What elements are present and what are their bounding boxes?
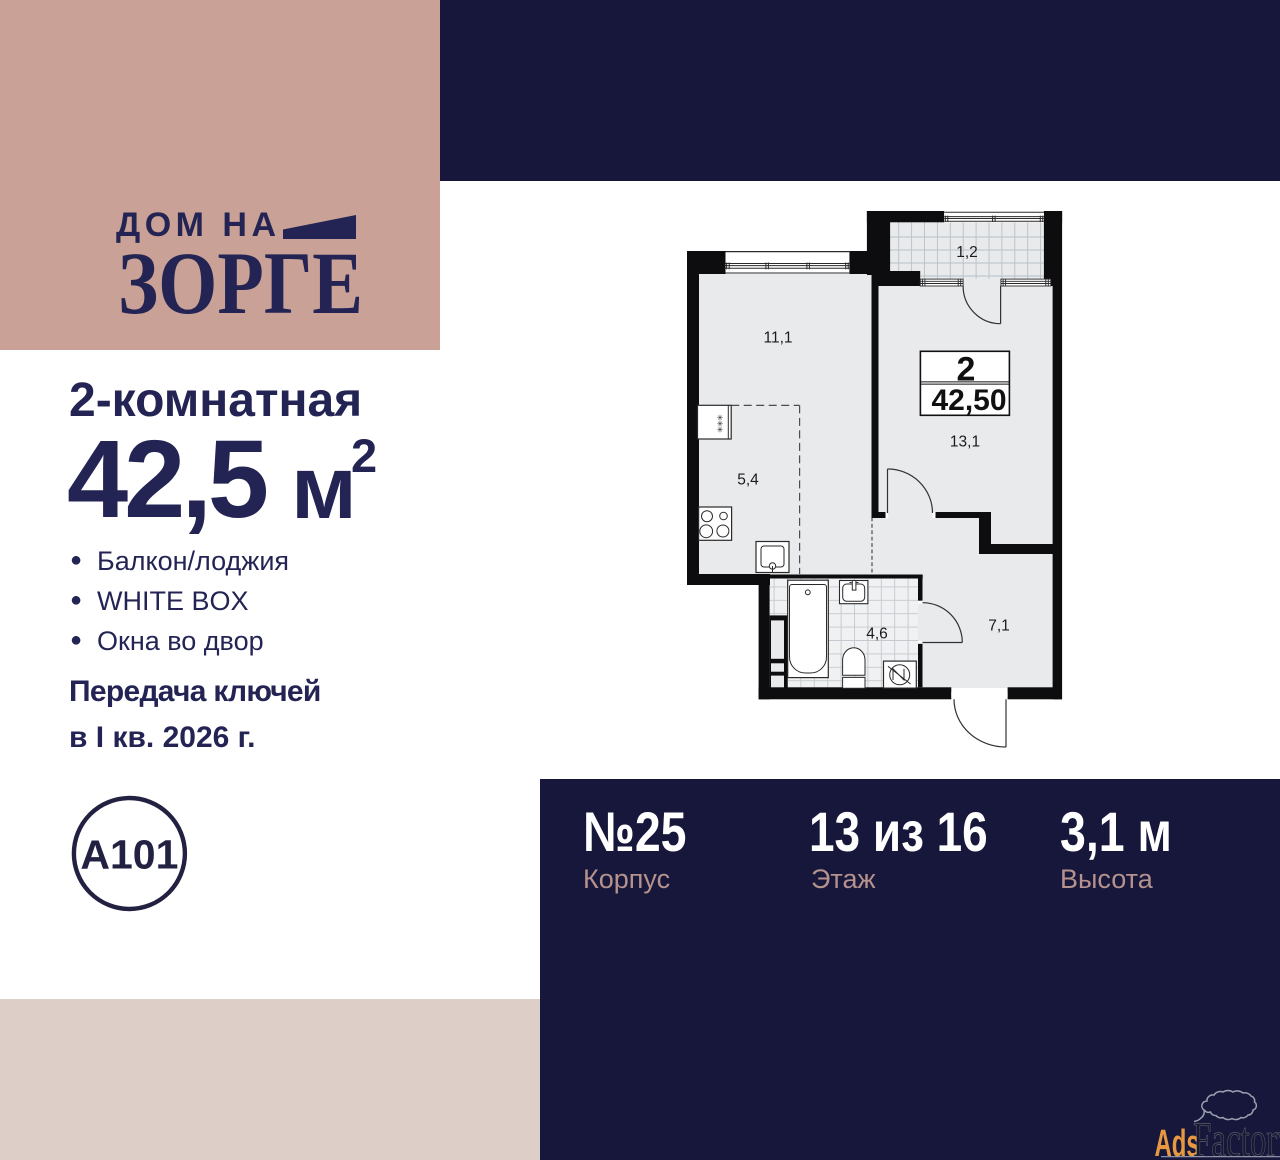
- svg-text:1,2: 1,2: [956, 244, 978, 261]
- svg-text:Factory: Factory: [1193, 1112, 1280, 1160]
- svg-text:2: 2: [957, 351, 976, 389]
- svg-text:7,1: 7,1: [988, 618, 1010, 635]
- svg-text:A101: A101: [80, 832, 178, 878]
- svg-text:42,50: 42,50: [931, 384, 1006, 417]
- svg-text:5,4: 5,4: [737, 472, 759, 489]
- svg-text:13,1: 13,1: [950, 434, 980, 451]
- svg-text:✳: ✳: [717, 426, 724, 435]
- svg-text:11,1: 11,1: [763, 330, 792, 347]
- svg-text:4,6: 4,6: [866, 626, 888, 643]
